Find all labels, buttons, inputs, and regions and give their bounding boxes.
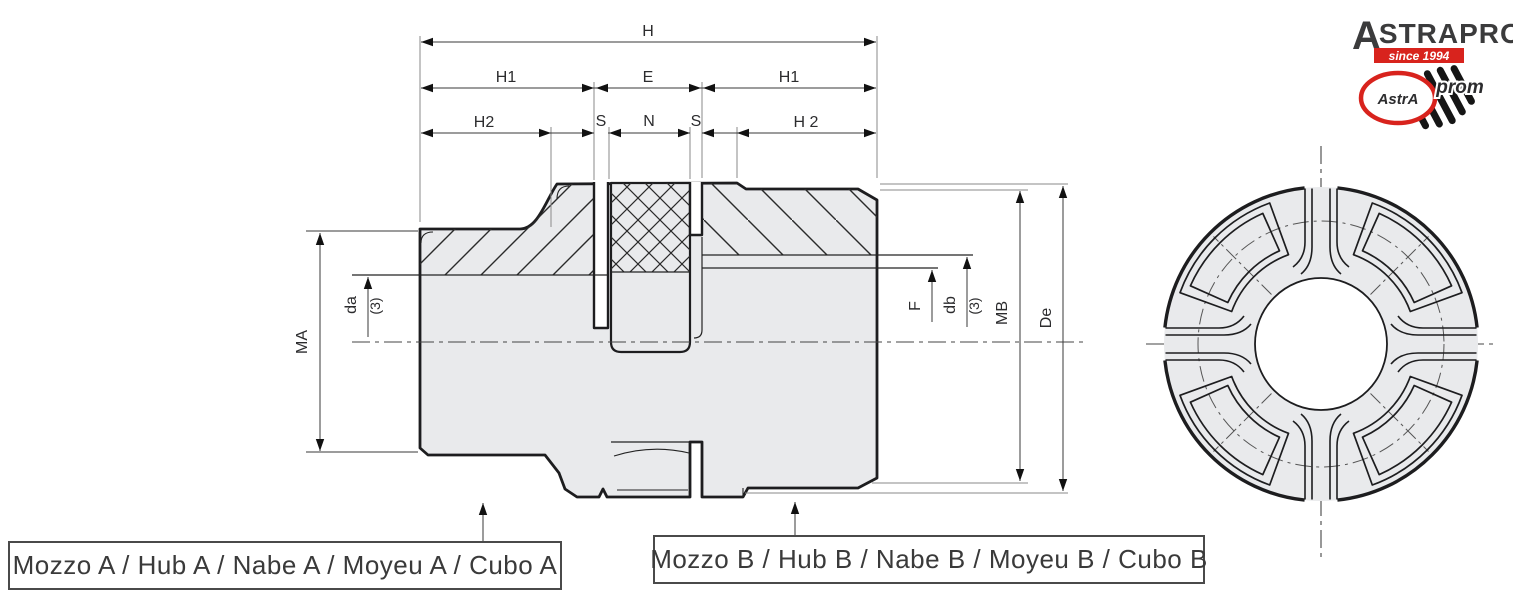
- brand-wordmark: ASTRAPROM d.o.o.: [1352, 18, 1513, 51]
- dim-label-h: H: [642, 23, 654, 40]
- tagline-banner: since 1994: [1374, 48, 1464, 63]
- hub-a-callout-box: Mozzo A / Hub A / Nabe A / Moyeu A / Cub…: [8, 541, 562, 590]
- emblem-primary-text: AstrA: [1377, 91, 1419, 108]
- hub-b-hatch: [702, 183, 877, 255]
- hub-a-callout-label: Mozzo A / Hub A / Nabe A / Moyeu A / Cub…: [13, 550, 558, 581]
- emblem-icon: AstrA prom: [1350, 62, 1498, 132]
- coupling-front-view: [1146, 146, 1497, 560]
- astraprom-logo: ASTRAPROM d.o.o. since 1994 AstrA prom: [1348, 10, 1500, 132]
- gap-slot-left: [594, 182, 608, 328]
- dim-label-da: da: [343, 296, 360, 314]
- hub-b-callout-box: Mozzo B / Hub B / Nabe B / Moyeu B / Cub…: [653, 535, 1205, 584]
- dim-label-db-note: (3): [966, 297, 982, 314]
- emblem-secondary-text: prom: [1435, 77, 1484, 98]
- dim-label-h2-right: H 2: [794, 114, 819, 131]
- dim-label-f: F: [907, 301, 924, 311]
- dim-label-s-left: S: [596, 113, 607, 130]
- hub-b-callout-label: Mozzo B / Hub B / Nabe B / Moyeu B / Cub…: [650, 544, 1208, 575]
- dim-label-s-right: S: [691, 113, 702, 130]
- dim-label-da-note: (3): [367, 297, 383, 314]
- dim-label-de: De: [1038, 308, 1055, 329]
- dim-label-h1-left: H1: [496, 69, 517, 86]
- dim-label-e: E: [643, 69, 654, 86]
- spider-crosshatch: [611, 183, 690, 272]
- coupling-cross-section: [352, 182, 1085, 497]
- hub-a-hatch: [420, 184, 594, 275]
- technical-drawing: H H1 E H1 H2 S N S H 2 MA da (3) F db (3…: [0, 0, 1513, 602]
- dim-label-db: db: [942, 296, 959, 314]
- dim-label-ma: MA: [294, 330, 311, 354]
- gap-slot-right: [690, 182, 702, 235]
- page: H H1 E H1 H2 S N S H 2 MA da (3) F db (3…: [0, 0, 1513, 602]
- dim-label-n: N: [643, 113, 655, 130]
- brand-name: STRAPROM: [1379, 18, 1513, 49]
- tagline-text: since 1994: [1389, 49, 1450, 63]
- dim-label-h1-right: H1: [779, 69, 800, 86]
- dim-label-mb: MB: [994, 301, 1011, 325]
- bore-circle: [1255, 278, 1387, 410]
- dim-label-h2-left: H2: [474, 114, 495, 131]
